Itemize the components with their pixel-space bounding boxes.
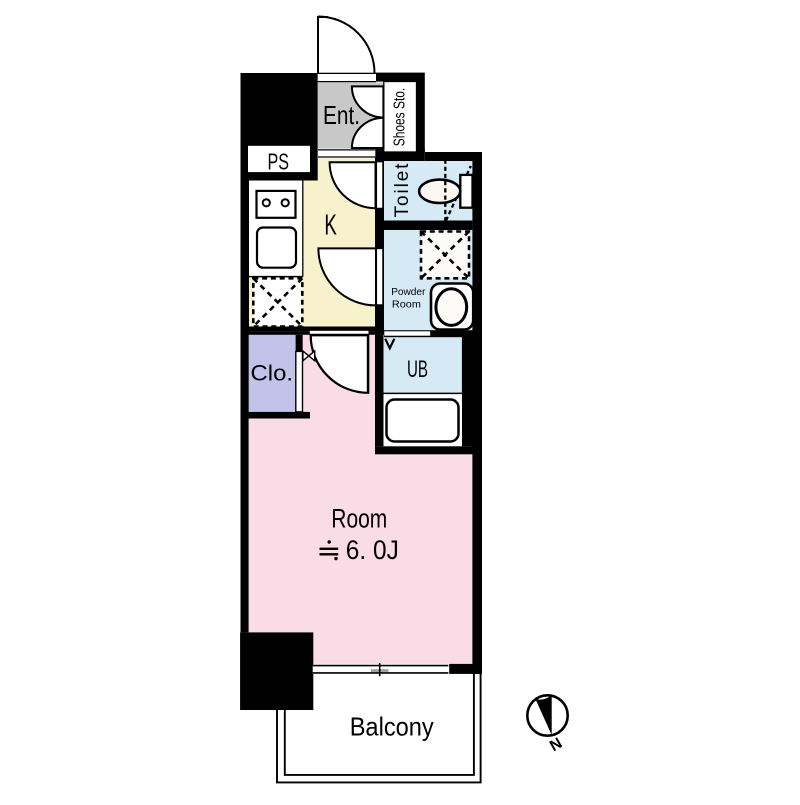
svg-text:K: K <box>324 209 337 241</box>
svg-text:Room: Room <box>331 504 387 534</box>
svg-text:UB: UB <box>407 356 428 383</box>
svg-text:Toilet: Toilet <box>392 162 413 218</box>
svg-text:PS: PS <box>267 149 289 175</box>
svg-text:Room: Room <box>392 298 421 310</box>
svg-text:Ent.: Ent. <box>323 100 360 130</box>
svg-text:Powder: Powder <box>391 286 426 298</box>
svg-text:Shoes Sto.: Shoes Sto. <box>391 88 408 147</box>
svg-text:Clo.: Clo. <box>251 361 294 386</box>
svg-text:6. 0J: 6. 0J <box>346 535 399 565</box>
svg-text:Balcony: Balcony <box>350 712 434 742</box>
